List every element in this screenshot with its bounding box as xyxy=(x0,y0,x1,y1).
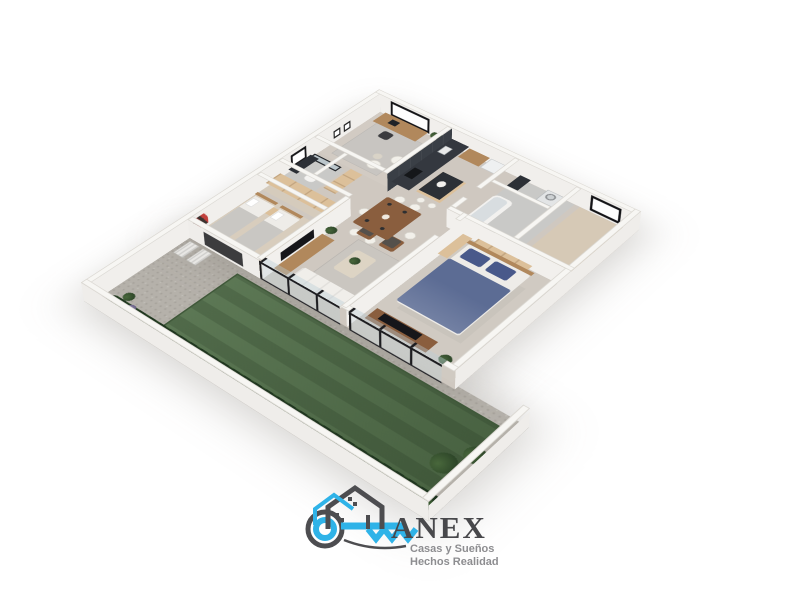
floor-plan-3d-scene xyxy=(84,107,706,521)
brand-text: ANEX xyxy=(391,510,487,545)
picture-frame xyxy=(344,120,351,132)
tagline-line-2: Hechos Realidad xyxy=(410,556,499,568)
anex-logo: ANEX Casas y Sueños Hechos Realidad xyxy=(288,482,558,577)
render-canvas: ANEX Casas y Sueños Hechos Realidad xyxy=(0,0,800,600)
tagline-line-1: Casas y Sueños xyxy=(410,543,494,555)
picture-frame xyxy=(333,127,340,139)
key-hole-ring xyxy=(316,520,334,538)
